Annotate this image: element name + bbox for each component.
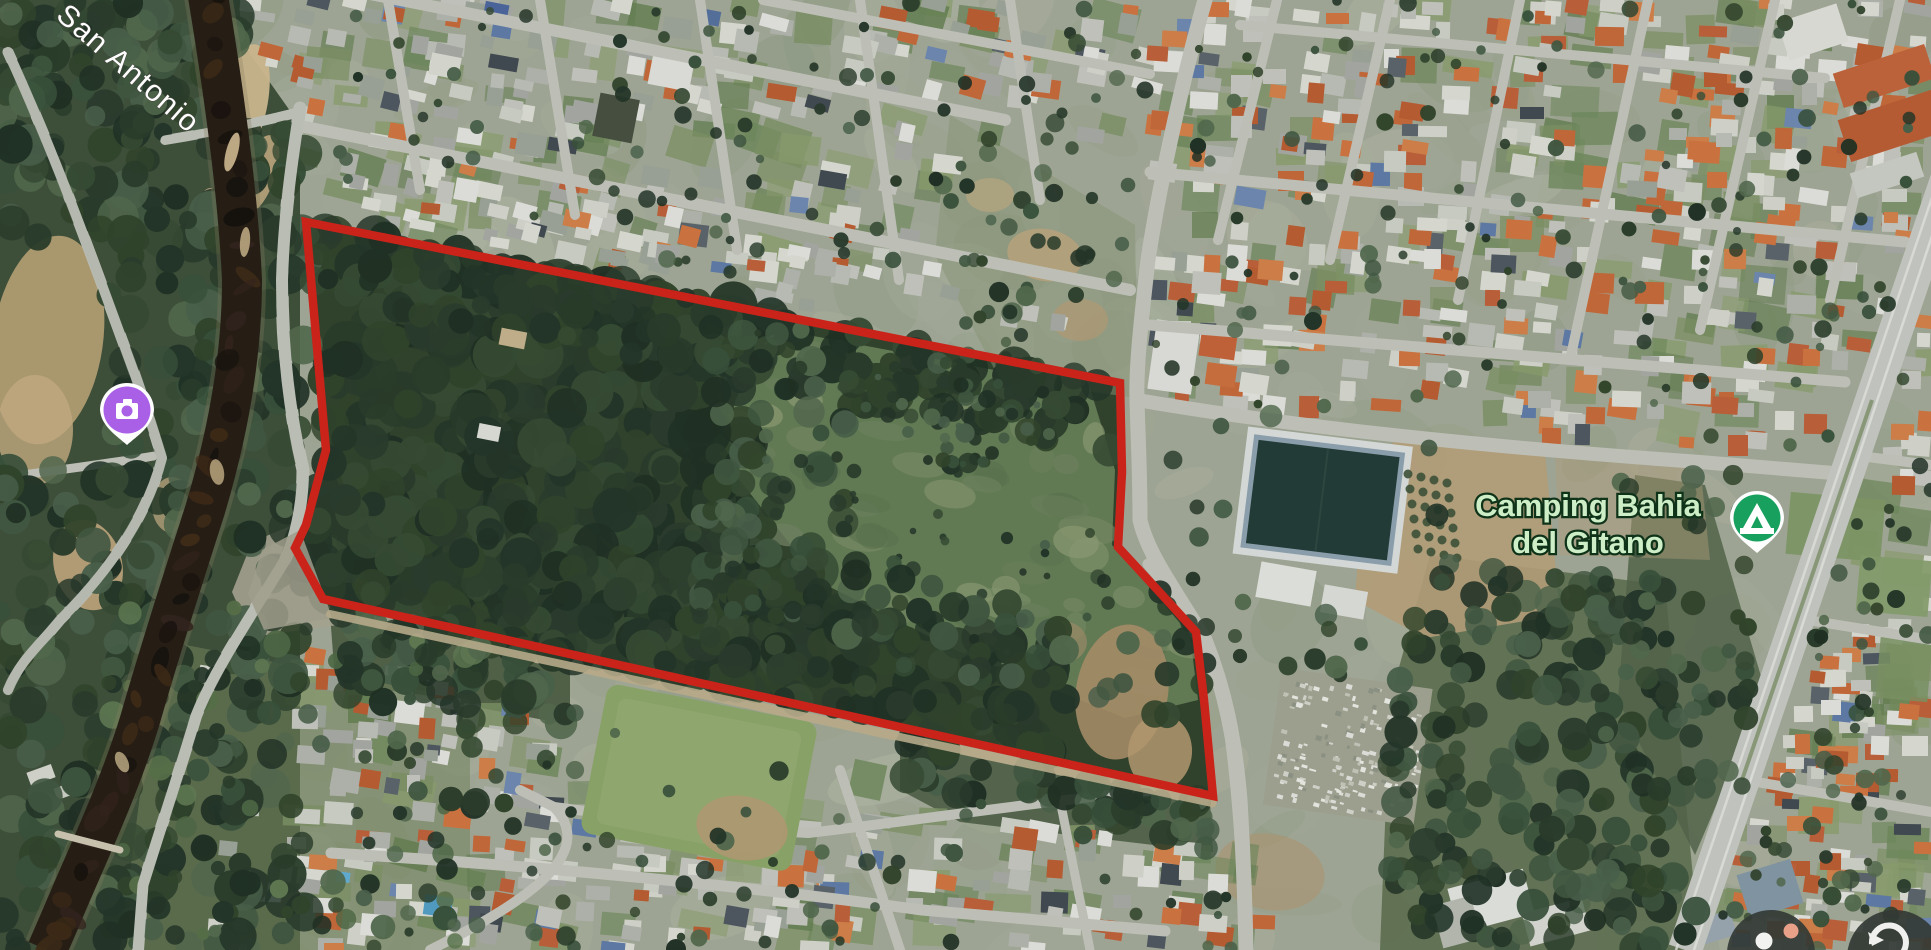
svg-text:Camping Bahia: Camping Bahia bbox=[1475, 488, 1701, 523]
svg-text:del Gitano: del Gitano bbox=[1512, 525, 1664, 560]
